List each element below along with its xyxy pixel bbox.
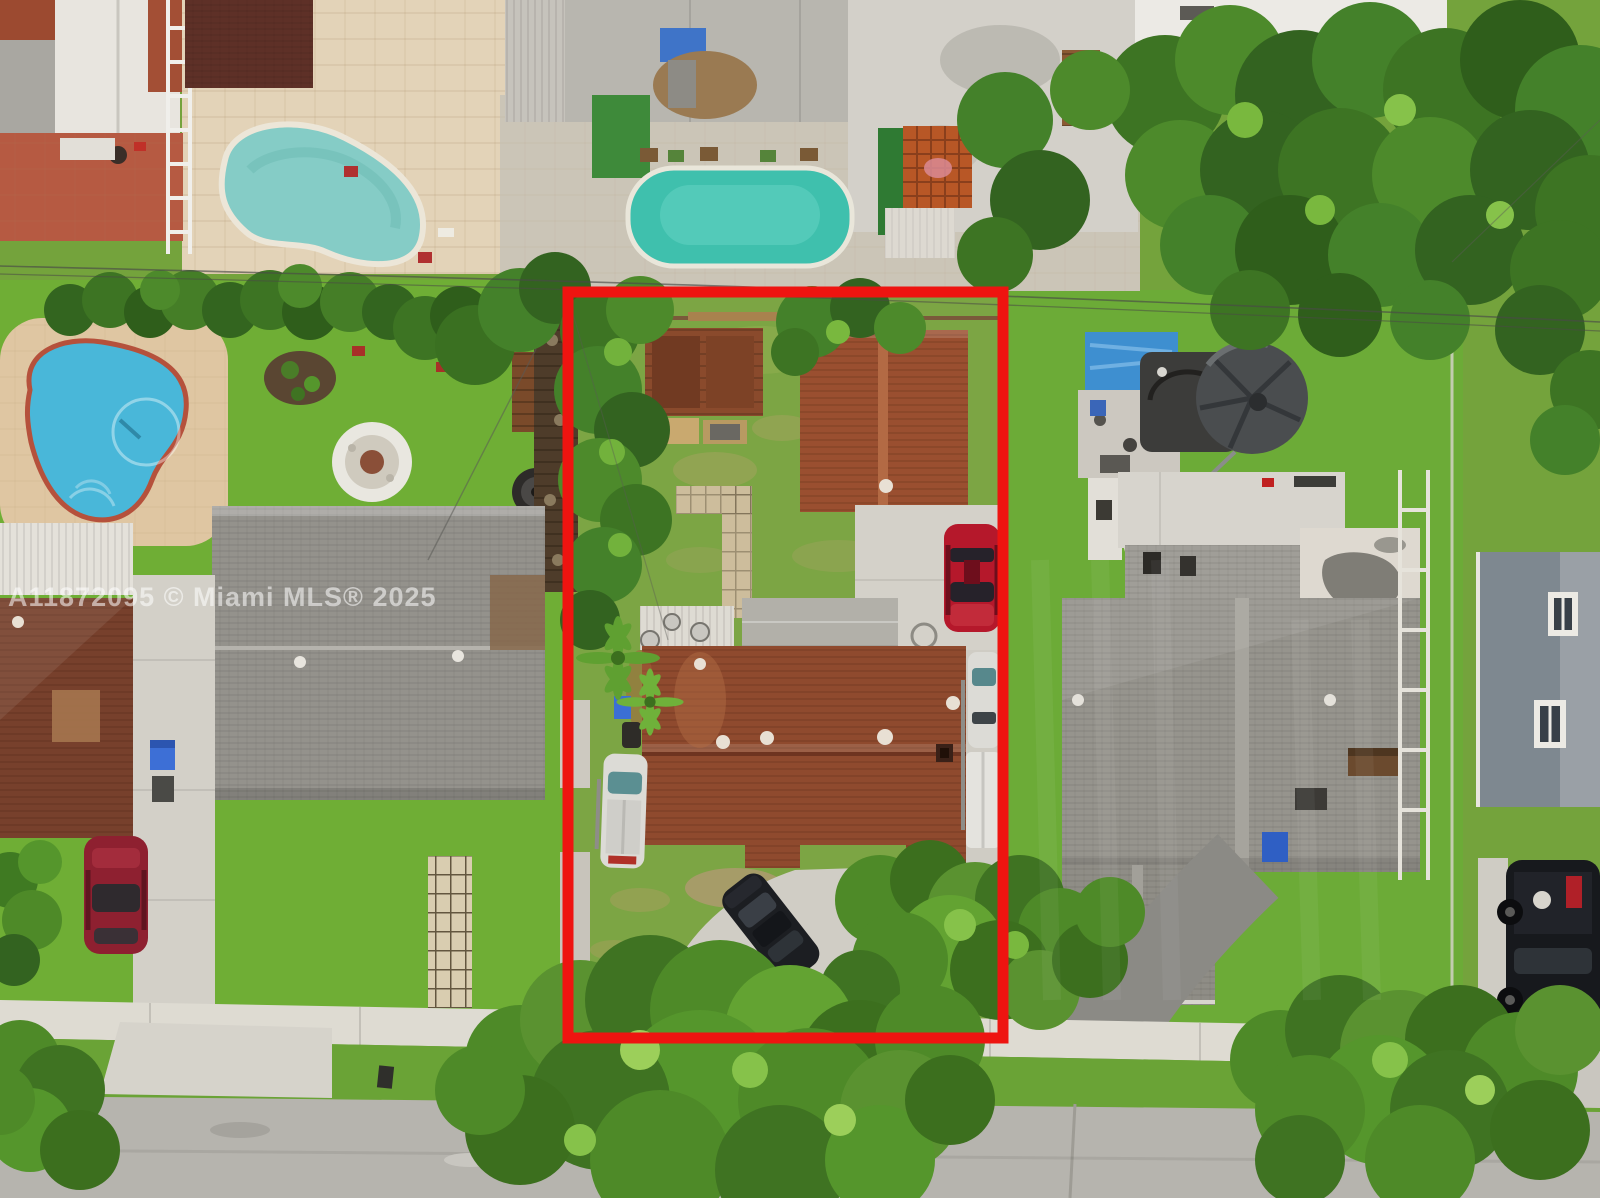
checkered-walkway <box>428 856 472 1008</box>
garage-rust-roof <box>800 330 968 512</box>
turquoise-pool <box>628 168 852 266</box>
satellite-dish <box>691 623 709 641</box>
left-driveway <box>133 575 215 1015</box>
top-left-house <box>0 0 183 241</box>
left-pool-area <box>0 318 228 546</box>
satellite-dish <box>664 614 680 630</box>
left-edge-house-roof <box>0 598 133 838</box>
trash-bin <box>152 776 174 802</box>
white-van <box>596 753 648 869</box>
blue-bin <box>1262 832 1288 862</box>
red-car-left <box>84 836 148 954</box>
aerial-photo: A11872095 © Miami MLS® 2025 <box>0 0 1600 1198</box>
far-right-gray-house <box>1478 552 1600 807</box>
mls-watermark: A11872095 © Miami MLS® 2025 <box>8 582 437 612</box>
left-neighbor-gray-roof <box>212 506 545 800</box>
red-car-subject <box>944 524 1000 632</box>
